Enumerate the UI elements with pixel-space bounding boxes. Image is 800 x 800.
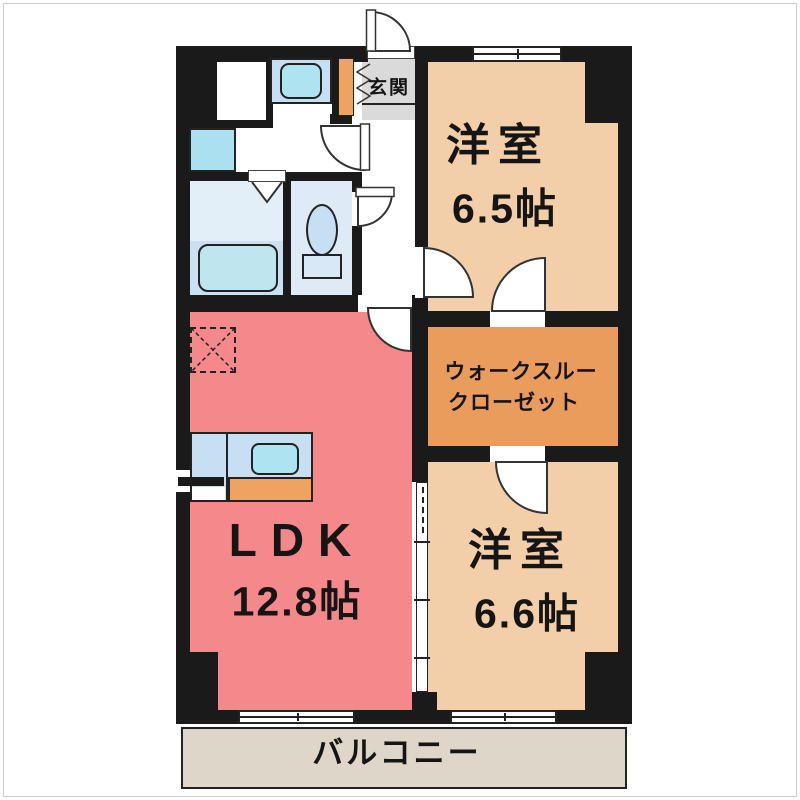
opening-toilet-door — [352, 192, 362, 226]
pillar-bottom-right — [585, 652, 632, 724]
wall-wtc-top-1 — [428, 311, 490, 327]
entrance-threshold — [367, 46, 415, 59]
window-bedroom2-balcony — [450, 710, 557, 724]
wall-toilet-top — [286, 172, 352, 181]
refrigerator-space — [190, 327, 236, 373]
kitchen-notch-bar — [178, 477, 224, 486]
walkthrough-closet-label-line2: クローゼット — [448, 393, 580, 414]
entrance-step-line — [362, 103, 415, 105]
wall-bottom-2 — [355, 710, 450, 724]
window-tick — [504, 713, 506, 721]
pillar-bottom-left — [176, 652, 218, 724]
kitchen-counter-end-white — [192, 487, 225, 500]
window-tick — [517, 49, 519, 59]
kitchen-sink — [251, 443, 299, 475]
ldk-label: LDK — [229, 517, 366, 563]
sliding-door-ldk-bedroom2 — [416, 482, 428, 692]
opening-ldk-door — [358, 295, 410, 312]
wall-closet-bottom — [190, 120, 273, 128]
wall-toilet-right-lower — [352, 226, 362, 298]
wall-ldk-top — [184, 295, 358, 312]
wall-wtc-bottom-2 — [545, 446, 632, 462]
bathtub — [198, 244, 278, 292]
sliding-door-dashed-track — [422, 487, 424, 533]
walkthrough-closet-label-line1: ウォークスルー — [444, 362, 597, 383]
walkthrough-closet-floor — [428, 327, 618, 446]
wall-left-upper — [176, 46, 190, 470]
balcony-label: バルコニー — [312, 738, 481, 769]
wall-wtc-bottom-1 — [428, 446, 490, 462]
wall-wtc-top-2 — [545, 311, 632, 327]
sliding-door-panel-divider — [414, 599, 430, 601]
bath-door-threshold — [248, 170, 286, 182]
sliding-door-panel-divider — [414, 657, 430, 659]
washing-machine-pan — [189, 128, 236, 172]
wall-slide-stub — [412, 692, 437, 712]
wall-hall-east — [415, 46, 428, 247]
bedroom2-size: 6.6帖 — [474, 594, 580, 635]
bedroom2-label: 洋室 — [468, 529, 572, 573]
window-tick — [297, 713, 299, 721]
opening-wtc-bottom — [490, 446, 545, 462]
wall-right — [618, 46, 632, 724]
pillar-top-right — [585, 46, 632, 123]
wall-toilet-right-upper — [352, 172, 362, 192]
window-ldk-balcony — [238, 710, 355, 724]
sliding-door-panel-divider — [414, 541, 430, 543]
block-top-left — [190, 62, 217, 120]
wall-wtc-left — [412, 295, 428, 482]
toilet-bowl — [306, 204, 338, 256]
shoe-cabinet — [338, 58, 354, 116]
bathroom-floor-upper — [190, 179, 283, 241]
gas-stove — [228, 477, 313, 502]
opening-hall-bedroom1 — [415, 247, 428, 298]
bedroom1-size: 6.5帖 — [452, 189, 558, 230]
entrance-label: 玄関 — [368, 79, 410, 98]
bedroom1-label: 洋室 — [446, 124, 550, 168]
washbasin-bowl — [280, 63, 322, 99]
floor-plan: 玄関 洋室 6.5帖 ウォークスルー クローゼット 洋室 6.6帖 LDK 12… — [0, 0, 800, 800]
wall-bath-toilet — [283, 172, 291, 298]
toilet-tank — [302, 254, 342, 279]
wall-bath-top — [184, 172, 248, 181]
opening-wtc-top — [490, 311, 545, 327]
window-bedroom1-top — [472, 46, 562, 62]
ldk-size: 12.8帖 — [232, 582, 363, 623]
